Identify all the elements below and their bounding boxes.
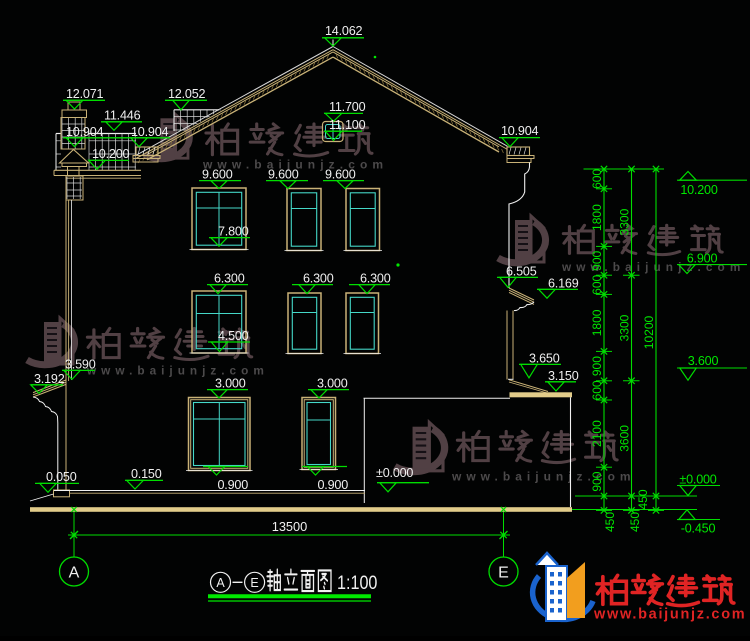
svg-text:±0.000: ±0.000 bbox=[376, 466, 413, 480]
svg-text:3.650: 3.650 bbox=[529, 351, 560, 365]
svg-text:3600: 3600 bbox=[618, 425, 632, 452]
svg-text:0.050: 0.050 bbox=[46, 470, 77, 484]
svg-text:E: E bbox=[250, 576, 258, 590]
svg-text:14.062: 14.062 bbox=[325, 24, 363, 38]
svg-text:3300: 3300 bbox=[618, 314, 632, 341]
svg-text:-0.450: -0.450 bbox=[681, 522, 716, 536]
svg-text:10.904: 10.904 bbox=[501, 124, 539, 138]
svg-text:11.100: 11.100 bbox=[329, 118, 366, 132]
svg-text:2100: 2100 bbox=[590, 420, 604, 447]
svg-text:9.600: 9.600 bbox=[202, 168, 233, 182]
svg-text:3300: 3300 bbox=[618, 208, 632, 235]
svg-text:1:100: 1:100 bbox=[337, 572, 378, 594]
svg-text:6.300: 6.300 bbox=[360, 272, 391, 286]
svg-text:www.baijunjz.com: www.baijunjz.com bbox=[86, 364, 269, 378]
svg-text:6.505: 6.505 bbox=[506, 264, 537, 278]
svg-text:1800: 1800 bbox=[590, 204, 604, 231]
svg-text:450: 450 bbox=[628, 512, 642, 532]
svg-text:11.700: 11.700 bbox=[329, 100, 366, 114]
svg-text:0.150: 0.150 bbox=[131, 467, 162, 481]
svg-text:±0.000: ±0.000 bbox=[679, 473, 716, 487]
svg-text:6.300: 6.300 bbox=[303, 272, 334, 286]
svg-text:900: 900 bbox=[590, 471, 604, 491]
svg-text:0.900: 0.900 bbox=[318, 478, 349, 492]
svg-text:12.071: 12.071 bbox=[66, 87, 104, 101]
svg-text:10.904: 10.904 bbox=[131, 125, 169, 139]
svg-text:13500: 13500 bbox=[272, 519, 308, 534]
svg-text:A: A bbox=[216, 576, 225, 590]
svg-text:6.300: 6.300 bbox=[214, 272, 245, 286]
svg-text:www.baijunjz.com: www.baijunjz.com bbox=[561, 260, 745, 274]
svg-text:10.200: 10.200 bbox=[680, 183, 718, 197]
svg-text:600: 600 bbox=[590, 380, 604, 400]
svg-text:10.200: 10.200 bbox=[92, 147, 130, 161]
svg-text:900: 900 bbox=[590, 250, 604, 270]
svg-text:3.000: 3.000 bbox=[317, 377, 348, 391]
svg-text:6.169: 6.169 bbox=[548, 276, 579, 290]
svg-text:3.192: 3.192 bbox=[34, 372, 65, 386]
svg-text:E: E bbox=[498, 565, 509, 582]
svg-text:10200: 10200 bbox=[642, 315, 656, 349]
svg-text:3.000: 3.000 bbox=[215, 377, 246, 391]
svg-text:www.baijunjz.com: www.baijunjz.com bbox=[593, 607, 746, 623]
svg-text:www.baijunjz.com: www.baijunjz.com bbox=[451, 470, 636, 484]
svg-text:600: 600 bbox=[590, 169, 604, 189]
svg-text:9.600: 9.600 bbox=[268, 168, 299, 182]
svg-text:4.500: 4.500 bbox=[218, 329, 249, 343]
svg-text:10.904: 10.904 bbox=[66, 125, 104, 139]
svg-text:450: 450 bbox=[603, 512, 617, 532]
svg-text:450: 450 bbox=[636, 489, 650, 509]
svg-text:12.052: 12.052 bbox=[168, 87, 206, 101]
svg-text:3.600: 3.600 bbox=[688, 354, 719, 368]
svg-text:3.590: 3.590 bbox=[65, 357, 96, 371]
svg-text:A: A bbox=[69, 565, 80, 582]
svg-text:600: 600 bbox=[590, 274, 604, 294]
svg-text:0.900: 0.900 bbox=[218, 478, 249, 492]
svg-text:7.800: 7.800 bbox=[218, 225, 249, 239]
svg-text:1800: 1800 bbox=[590, 309, 604, 336]
svg-text:11.446: 11.446 bbox=[104, 108, 141, 122]
svg-text:6.900: 6.900 bbox=[687, 252, 718, 266]
svg-text:3.150: 3.150 bbox=[548, 369, 579, 383]
svg-text:900: 900 bbox=[590, 356, 604, 376]
svg-text:9.600: 9.600 bbox=[325, 168, 356, 182]
